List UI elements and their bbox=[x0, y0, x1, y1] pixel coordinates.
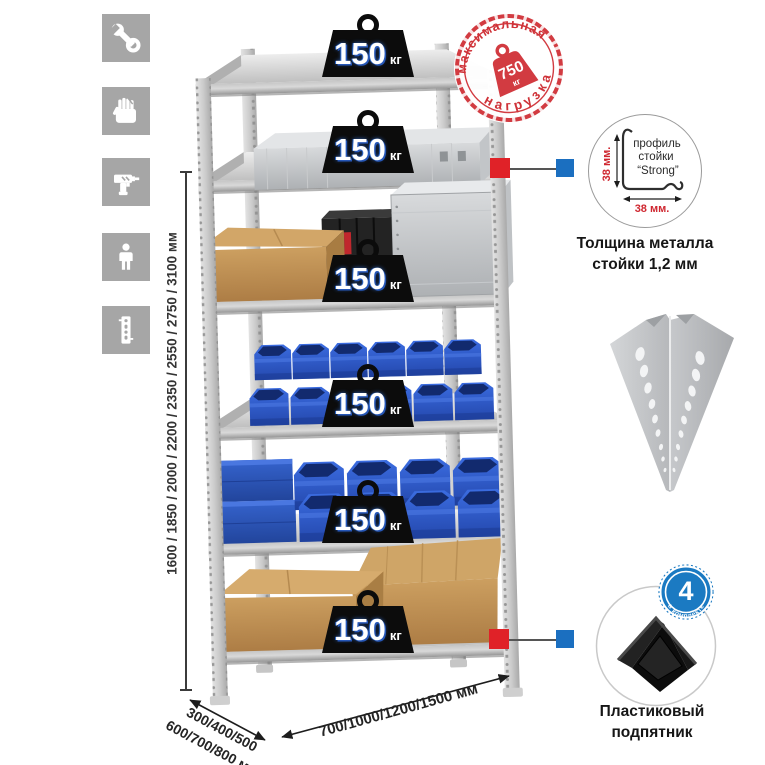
profile-label-3: “Strong” bbox=[637, 165, 679, 177]
callout-line-bottom bbox=[508, 639, 558, 641]
post-profile-icon bbox=[102, 306, 150, 354]
drill-icon bbox=[102, 158, 150, 206]
load-unit: кг bbox=[390, 628, 402, 643]
drill-glyph bbox=[110, 166, 142, 198]
load-value: 150 bbox=[334, 263, 386, 294]
height-dimension-label: 1600 / 1850 / 2000 / 2200 / 2350 / 2550 … bbox=[165, 184, 180, 624]
shelf-load-badge: 150 кг bbox=[322, 590, 414, 653]
load-unit: кг bbox=[390, 518, 402, 533]
person-icon bbox=[102, 233, 150, 281]
wrench-icon bbox=[102, 14, 150, 62]
gloves-icon bbox=[102, 87, 150, 135]
product-infographic: 150 кг 150 кг 150 кг 150 кг 150 кг bbox=[0, 0, 765, 765]
load-unit: кг bbox=[390, 402, 402, 417]
detail-marker-blue-bottom bbox=[556, 630, 574, 648]
shelf-load-badge: 150 кг bbox=[322, 480, 414, 543]
max-load-stamp: максимальная нагрузка 750 кг bbox=[449, 8, 569, 128]
post-marker-red-top bbox=[490, 158, 510, 178]
load-unit: кг bbox=[390, 277, 402, 292]
wrench-glyph bbox=[110, 22, 142, 54]
weight-body: 150 кг bbox=[322, 380, 414, 427]
profile-caption: Толщина металла стойки 1,2 мм bbox=[565, 234, 725, 276]
weight-body: 150 кг bbox=[322, 496, 414, 543]
gloves-glyph bbox=[110, 95, 142, 127]
weight-body: 150 кг bbox=[322, 30, 414, 77]
foot-caption-line1: Пластиковый bbox=[572, 702, 732, 723]
post-profile-glyph bbox=[110, 314, 142, 346]
shelf-load-badge: 150 кг bbox=[322, 14, 414, 77]
shelf-load-badge: 150 кг bbox=[322, 364, 414, 427]
load-unit: кг bbox=[390, 148, 402, 163]
profile-caption-line1: Толщина металла bbox=[565, 234, 725, 255]
profile-dim-vertical: 38 мм. bbox=[601, 147, 613, 182]
foot-caption-line2: подпятник bbox=[572, 723, 732, 744]
person-glyph bbox=[110, 241, 142, 273]
profile-label-2: стойки bbox=[638, 151, 673, 163]
load-value: 150 bbox=[334, 134, 386, 165]
angle-post-image bbox=[596, 300, 746, 512]
post-profile-detail: 38 мм. 38 мм. профиль стойки “Strong” bbox=[586, 112, 704, 230]
load-value: 150 bbox=[334, 388, 386, 419]
height-dimension-line bbox=[178, 166, 192, 696]
shelf-load-badge: 150 кг bbox=[322, 239, 414, 302]
weight-body: 150 кг bbox=[322, 606, 414, 653]
load-unit: кг bbox=[390, 52, 402, 67]
post-marker-red-bottom bbox=[489, 629, 509, 649]
foot-caption: Пластиковый подпятник bbox=[572, 702, 732, 744]
shelf-load-badge: 150 кг bbox=[322, 110, 414, 173]
badge-count: 4 bbox=[678, 576, 693, 606]
load-value: 150 bbox=[334, 38, 386, 69]
callout-line-top bbox=[508, 168, 558, 170]
profile-dim-horizontal: 38 мм. bbox=[635, 203, 670, 215]
load-value: 150 bbox=[334, 504, 386, 535]
detail-marker-blue-top bbox=[556, 159, 574, 177]
profile-caption-line2: стойки 1,2 мм bbox=[565, 255, 725, 276]
load-value: 150 bbox=[334, 614, 386, 645]
quantity-badge: 4 в комплекте bbox=[658, 564, 714, 620]
weight-body: 150 кг bbox=[322, 126, 414, 173]
profile-label-1: профиль bbox=[633, 138, 681, 150]
weight-body: 150 кг bbox=[322, 255, 414, 302]
